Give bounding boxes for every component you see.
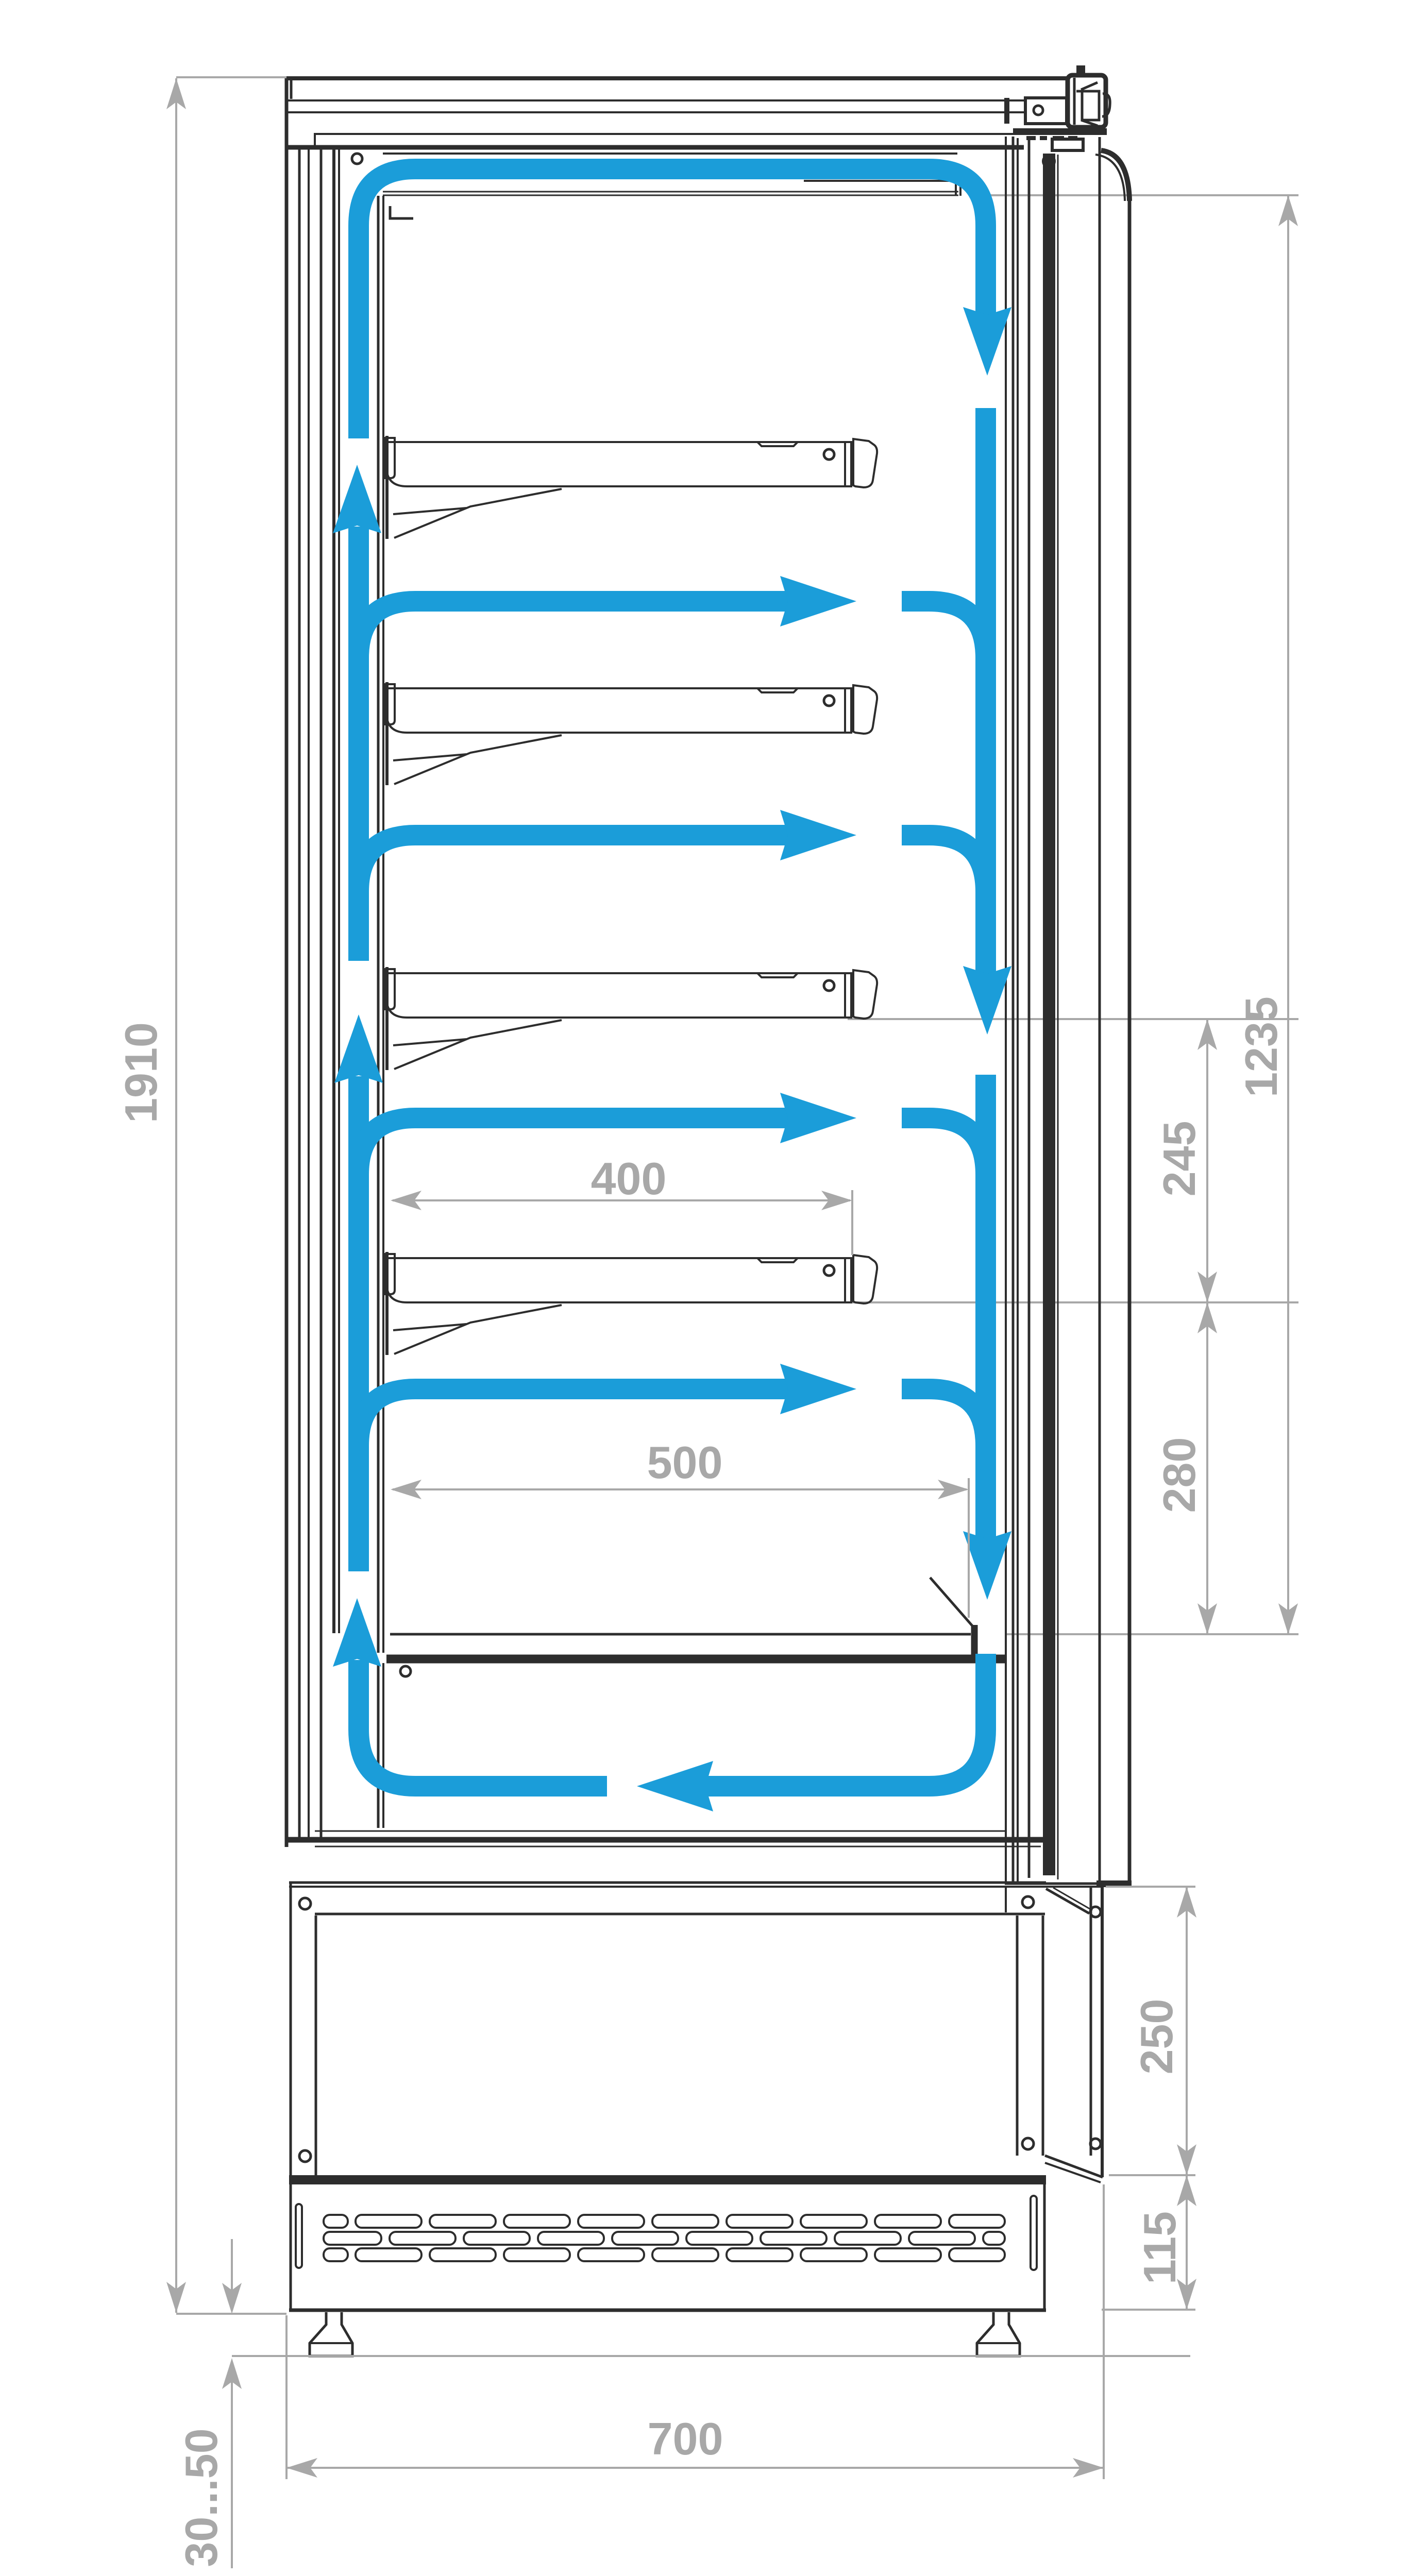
svg-text:245: 245: [1154, 1121, 1205, 1197]
svg-text:700: 700: [648, 2413, 723, 2464]
svg-text:30...50: 30...50: [176, 2428, 227, 2567]
svg-text:1910: 1910: [115, 1022, 166, 1123]
svg-text:280: 280: [1154, 1437, 1205, 1513]
svg-text:500: 500: [647, 1437, 723, 1488]
svg-text:1235: 1235: [1236, 996, 1287, 1097]
svg-text:400: 400: [591, 1153, 667, 1204]
svg-text:250: 250: [1131, 1999, 1182, 2075]
svg-text:115: 115: [1134, 2211, 1185, 2284]
